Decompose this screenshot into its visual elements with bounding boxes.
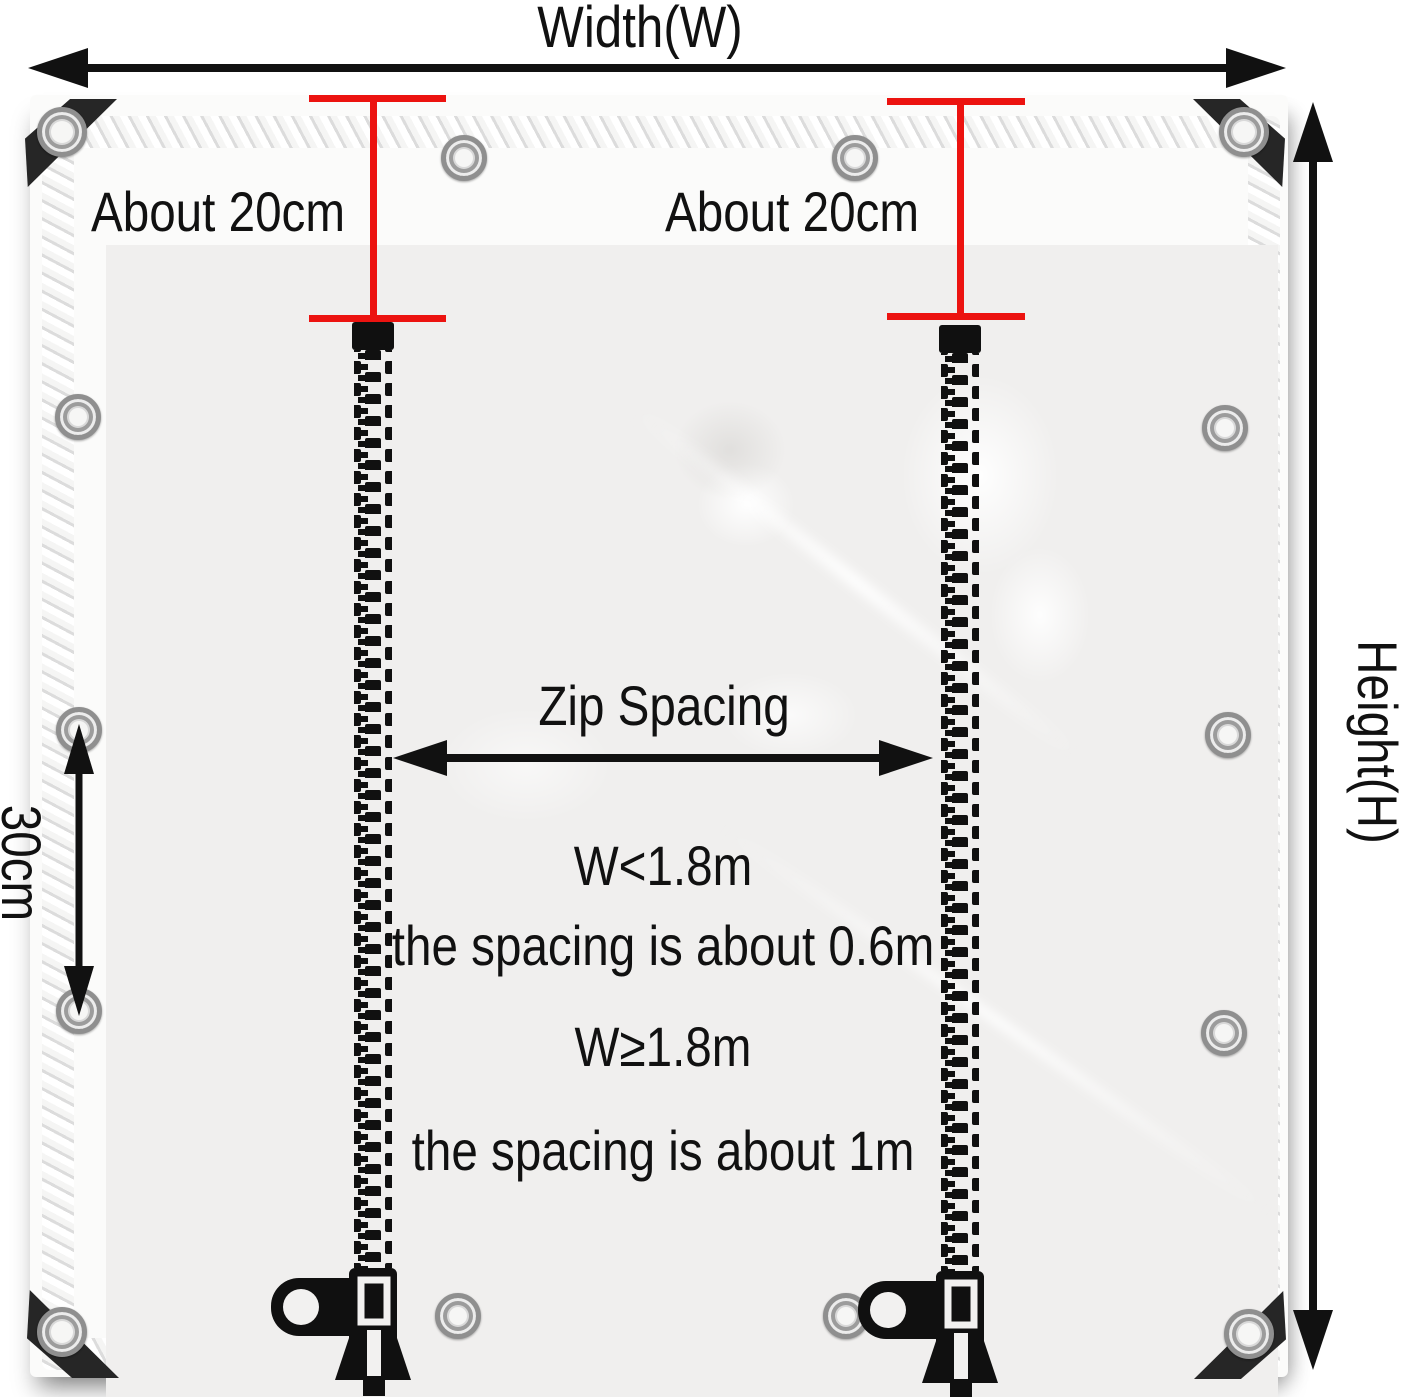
grommet-icon: [832, 135, 878, 181]
offset-right-label: About 20cm: [665, 184, 919, 240]
rule1-result: the spacing is about 0.6m: [392, 918, 934, 974]
grommet-icon: [55, 394, 101, 440]
red-measure-line-left: [370, 97, 377, 322]
width-label: Width(W): [537, 0, 742, 57]
grommet-icon: [1219, 107, 1269, 157]
zipper-right-icon: [850, 319, 1030, 1397]
tarpaulin-dimension-diagram: Width(W) Height(H) About 20cm About 20cm…: [0, 0, 1403, 1397]
rule2-result: the spacing is about 1m: [412, 1123, 915, 1179]
grommet-spacing-label: 30cm: [0, 805, 49, 921]
red-measure-bottom-bar-right: [887, 313, 1025, 320]
zipper-left-icon: [263, 316, 443, 1397]
offset-left-label: About 20cm: [91, 184, 345, 240]
grommet-icon: [1202, 405, 1248, 451]
zip-spacing-label: Zip Spacing: [538, 678, 789, 734]
height-label: Height(H): [1349, 640, 1403, 844]
grommet-icon: [37, 107, 87, 157]
grommet-icon: [441, 135, 487, 181]
grommet-icon: [1224, 1309, 1274, 1359]
height-arrow-icon: [1286, 100, 1340, 1372]
red-measure-top-bar-left: [309, 95, 446, 102]
rope-hem-top: [46, 116, 1270, 148]
grommet-icon: [37, 1307, 87, 1357]
grommet-icon: [1205, 712, 1251, 758]
red-measure-line-right: [957, 100, 964, 320]
red-measure-top-bar-right: [887, 98, 1025, 105]
zip-spacing-arrow-icon: [391, 732, 935, 784]
grommet-spacing-arrow-icon: [56, 722, 102, 1018]
rule2-condition: W≥1.8m: [575, 1019, 752, 1075]
red-measure-bottom-bar-left: [309, 315, 446, 322]
grommet-icon: [1201, 1010, 1247, 1056]
rule1-condition: W<1.8m: [574, 838, 753, 894]
